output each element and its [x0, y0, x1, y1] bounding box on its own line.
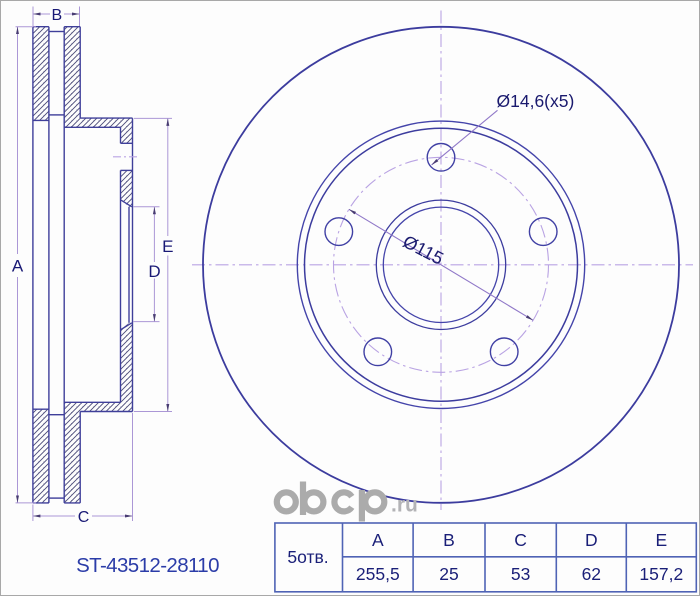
svg-text:53: 53 [511, 564, 530, 584]
svg-text:5отв.: 5отв. [287, 547, 328, 567]
svg-text:E: E [655, 530, 667, 550]
svg-text:C: C [78, 509, 90, 526]
svg-text:62: 62 [582, 564, 601, 584]
svg-text:B: B [51, 7, 62, 24]
svg-text:D: D [148, 262, 160, 281]
svg-text:E: E [162, 237, 173, 256]
svg-text:255,5: 255,5 [356, 564, 400, 584]
svg-text:A: A [12, 257, 24, 276]
svg-text:B: B [443, 530, 455, 550]
svg-text:A: A [372, 530, 384, 550]
svg-text:Ø14,6(x5): Ø14,6(x5) [497, 91, 575, 111]
svg-text:.ru: .ru [391, 494, 418, 517]
svg-text:157,2: 157,2 [639, 564, 683, 584]
svg-text:D: D [585, 530, 598, 550]
svg-text:ST-43512-28110: ST-43512-28110 [76, 554, 219, 577]
svg-text:C: C [514, 530, 527, 550]
svg-text:25: 25 [439, 564, 458, 584]
